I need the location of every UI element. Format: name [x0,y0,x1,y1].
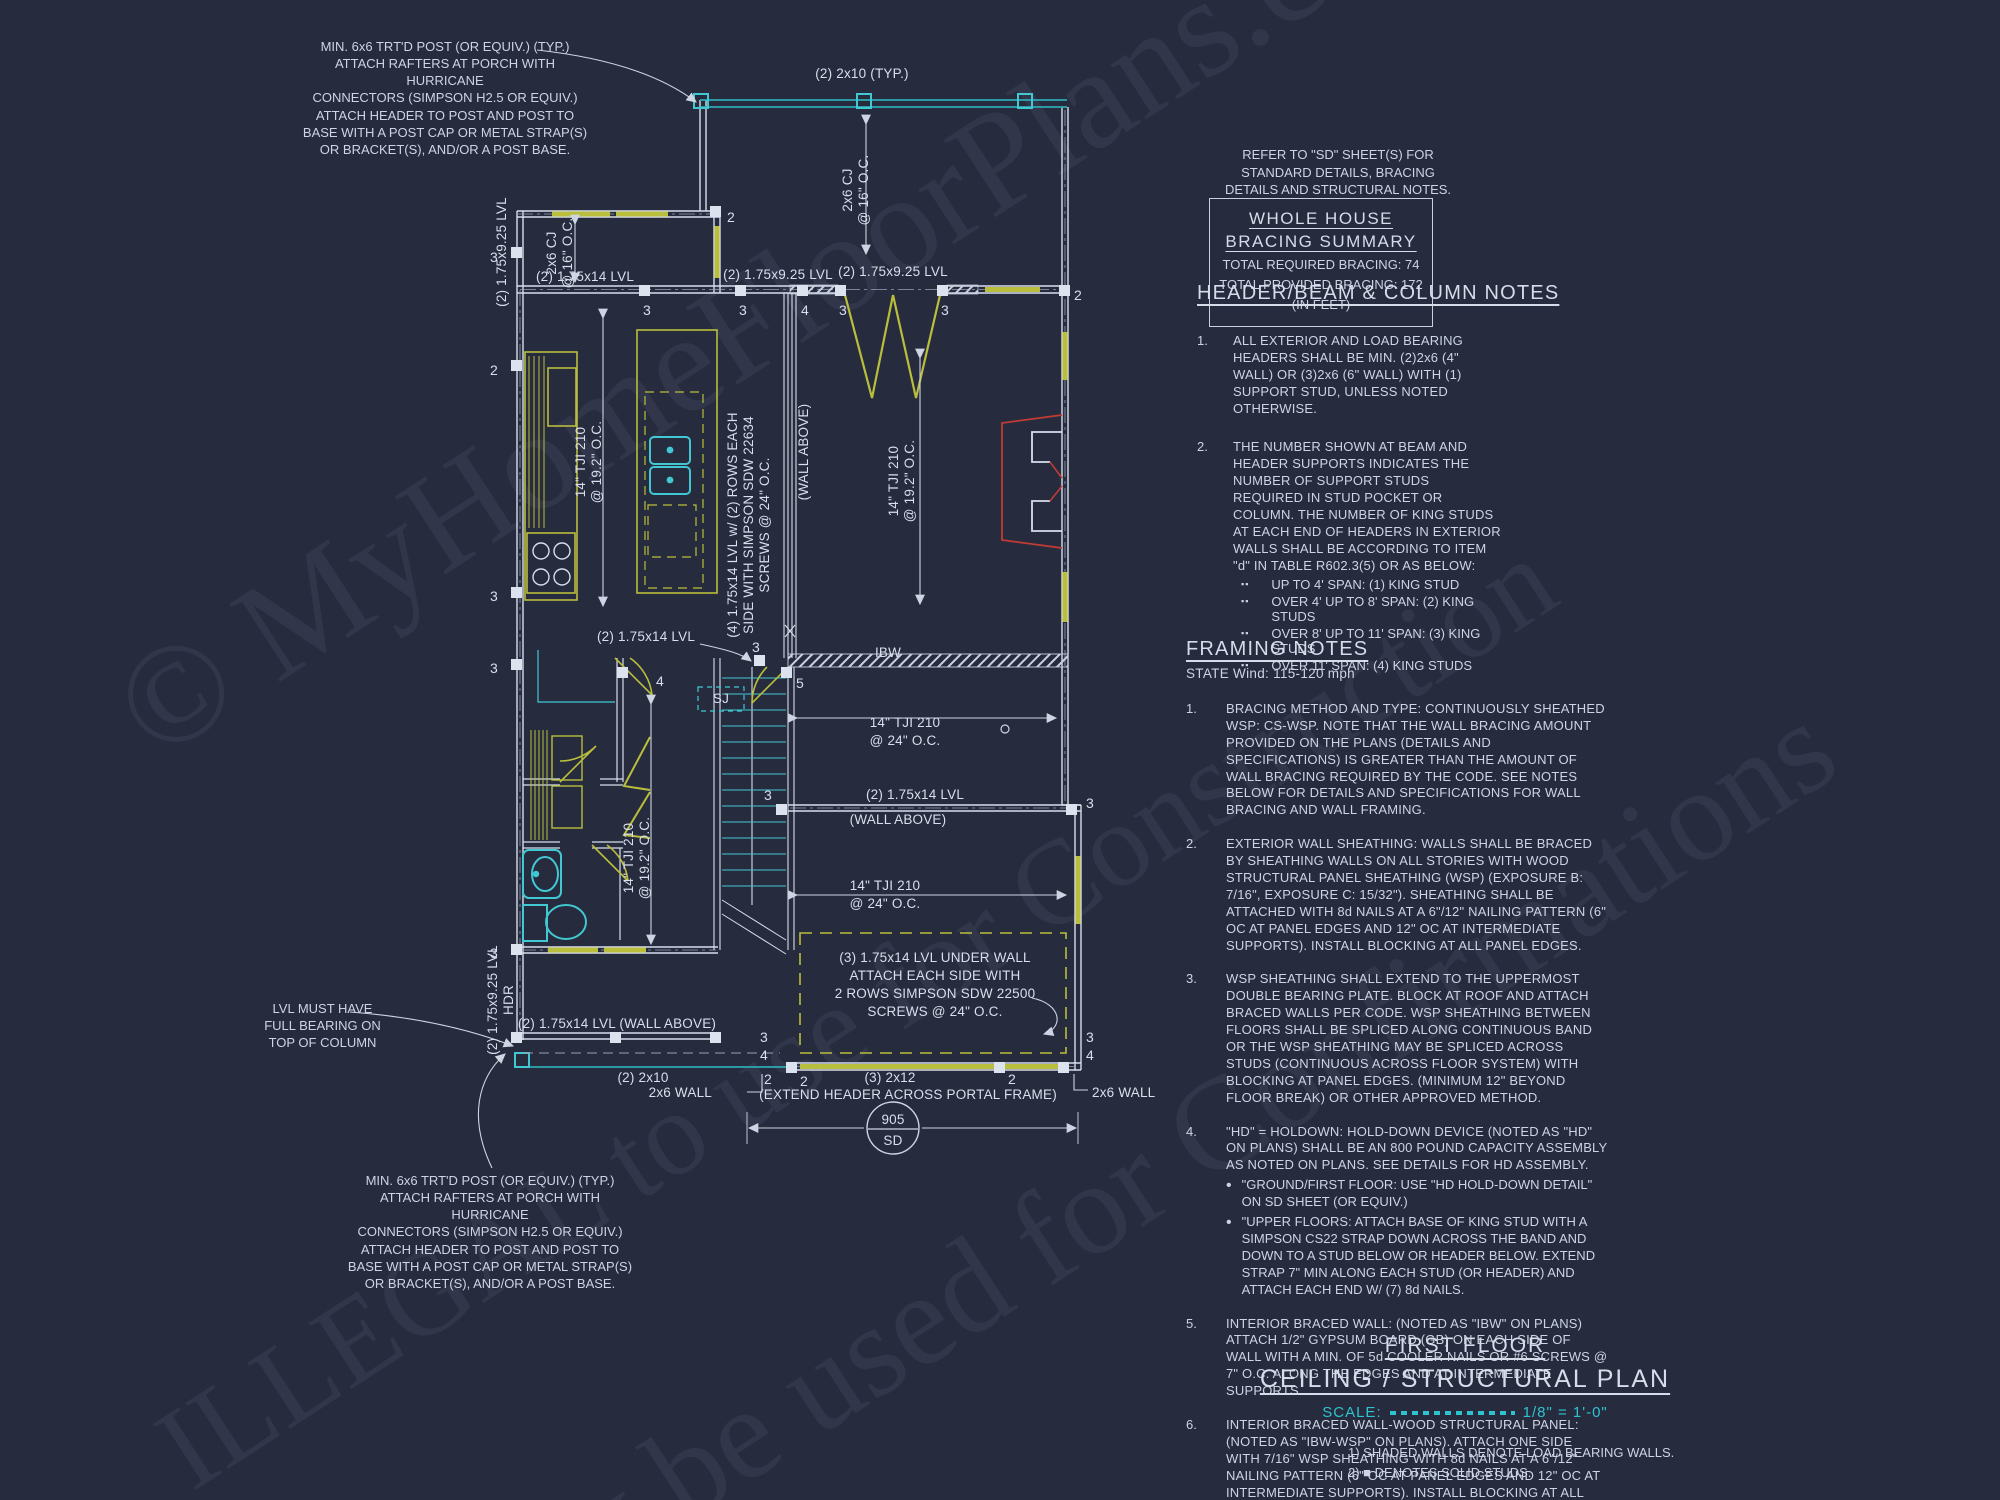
svg-text:3: 3 [490,588,498,604]
scale-value: 1/8" = 1'-0" [1523,1404,1608,1421]
svg-text:@ 19.2" O.C.: @ 19.2" O.C. [637,817,652,899]
hd-bullet: "GROUND/FIRST FLOOR: USE "HD HOLD-DOWN D… [1226,1177,1616,1211]
note-item: 4. "HD" = HOLDOWN: HOLD-DOWN DEVICE (NOT… [1186,1124,1616,1175]
legend: 1) SHADED WALLS DENOTE LOAD BEARING WALL… [1245,1443,1685,1482]
island-sink [650,437,690,494]
svg-text:SD: SD [883,1133,902,1148]
svg-text:SCREWS @ 24" O.C.: SCREWS @ 24" O.C. [867,1004,1002,1019]
ibw-label: IBW [875,645,901,660]
svg-text:4: 4 [656,673,664,689]
svg-text:(2) 1.75x9.25 LVL: (2) 1.75x9.25 LVL [494,197,509,307]
scale-dashes [1390,1411,1515,1415]
svg-text:3: 3 [643,302,651,318]
svg-text:(2) 1.75x9.25 LVL: (2) 1.75x9.25 LVL [485,945,500,1055]
svg-text:4: 4 [1086,1047,1094,1063]
svg-text:3: 3 [1086,1029,1094,1045]
hd-bullet: "UPPER FLOORS: ATTACH BASE OF KING STUD … [1226,1214,1616,1298]
svg-text:2: 2 [764,1071,772,1087]
porch-posts [515,94,1032,1067]
plan-title-line2: CEILING / STRUCTURAL PLAN [1245,1365,1685,1394]
svg-text:ATTACH EACH SIDE WITH: ATTACH EACH SIDE WITH [850,968,1021,983]
svg-text:@ 19.2" O.C.: @ 19.2" O.C. [589,421,604,503]
svg-text:2 ROWS SIMPSON SDW 22500: 2 ROWS SIMPSON SDW 22500 [835,986,1036,1001]
svg-text:(WALL ABOVE): (WALL ABOVE) [850,812,947,827]
svg-text:(2) 1.75x14 LVL: (2) 1.75x14 LVL [536,269,634,284]
legend-line1: 1) SHADED WALLS DENOTE LOAD BEARING WALL… [1348,1443,1685,1463]
legend-line2: 2) ■ DENOTES SOLID STUDS. [1348,1463,1685,1483]
svg-text:(2) 1.75x14 LVL: (2) 1.75x14 LVL [866,787,964,802]
svg-text:SCREWS @ 24" O.C.: SCREWS @ 24" O.C. [757,457,772,592]
svg-text:4: 4 [801,302,809,318]
beam-label: (2) 2x10 (TYP.) [815,66,909,81]
note-item: 1. ALL EXTERIOR AND LOAD BEARING HEADERS… [1197,333,1507,417]
svg-text:2: 2 [490,362,498,378]
svg-text:3: 3 [941,302,949,318]
lvl-bearing-note: LVL MUST HAVE FULL BEARING ON TOP OF COL… [255,1000,390,1051]
svg-text:3: 3 [764,787,772,803]
structural-plan-sheet: © MyHomeFloorPlans.com ILLEGAL to use fo… [0,0,2000,1500]
svg-text:14" TJI 210: 14" TJI 210 [621,823,636,894]
svg-text:(3) 1.75x14 LVL UNDER WALL: (3) 1.75x14 LVL UNDER WALL [839,950,1031,965]
section-heading: FRAMING NOTES [1186,638,1616,661]
svg-text:@ 16" O.C.: @ 16" O.C. [856,155,871,226]
scale-label: SCALE: [1322,1404,1381,1421]
note-item: 1. BRACING METHOD AND TYPE: CONTINUOUSLY… [1186,701,1616,819]
svg-text:3: 3 [752,639,760,655]
svg-text:2x6 CJ: 2x6 CJ [840,168,855,211]
king-stud-rule: UP TO 4' SPAN: (1) KING STUD [1241,577,1507,592]
svg-text:(2) 1.75x9.25 LVL: (2) 1.75x9.25 LVL [723,267,833,282]
svg-text:905: 905 [881,1112,904,1127]
plan-title-line1: FIRST FLOOR [1245,1334,1685,1358]
bathroom-fixtures [523,850,586,941]
section-heading: HEADER/BEAM & COLUMN NOTES [1197,282,1507,305]
svg-text:3: 3 [760,1029,768,1045]
svg-text:14" TJI 210: 14" TJI 210 [573,427,588,498]
svg-text:14" TJI 210: 14" TJI 210 [850,878,921,893]
svg-text:(EXTEND HEADER ACROSS PORTAL F: (EXTEND HEADER ACROSS PORTAL FRAME) [759,1087,1057,1102]
svg-text:@ 19.2" O.C.: @ 19.2" O.C. [902,440,917,522]
required-bracing: TOTAL REQUIRED BRACING: 74 [1215,256,1427,274]
svg-text:2: 2 [727,209,735,225]
svg-text:14" TJI 210: 14" TJI 210 [870,715,941,730]
svg-text:3: 3 [1086,795,1094,811]
king-stud-rule: OVER 4' UP TO 8' SPAN: (2) KING STUDS [1241,594,1507,624]
svg-text:HDR: HDR [501,985,516,1015]
svg-text:3: 3 [839,302,847,318]
svg-text:(2) 2x10: (2) 2x10 [617,1070,668,1085]
kitchen-counters [525,330,717,600]
svg-text:@ 24" O.C.: @ 24" O.C. [850,896,921,911]
note-item: 3. WSP SHEATHING SHALL EXTEND TO THE UPP… [1186,971,1616,1106]
svg-text:(4) 1.75x14 LVL w/ (2) ROWS EA: (4) 1.75x14 LVL w/ (2) ROWS EACH [725,412,740,637]
svg-text:4: 4 [760,1047,768,1063]
bath-partitions [523,650,623,940]
scale-row: SCALE:1/8" = 1'-0" [1245,1404,1685,1421]
post-note-bottom: MIN. 6x6 TRT'D POST (OR EQUIV.) (TYP.) A… [345,1172,635,1292]
svg-text:5: 5 [796,675,804,691]
svg-text:(WALL ABOVE): (WALL ABOVE) [796,404,811,501]
exterior-walls [517,100,1081,1070]
svg-text:3: 3 [490,660,498,676]
svg-text:2: 2 [1074,287,1082,303]
detail-callout-bubble: 905 SD [867,1102,919,1154]
svg-text:(2) 1.75x14 LVL (WALL ABOVE): (2) 1.75x14 LVL (WALL ABOVE) [518,1016,716,1031]
svg-text:2: 2 [1008,1071,1016,1087]
svg-text:2x6 WALL: 2x6 WALL [649,1085,713,1100]
fireplace [1002,415,1062,548]
cooktop-burners [533,543,570,585]
bracing-title: WHOLE HOUSE [1215,208,1427,231]
svg-text:@ 24" O.C.: @ 24" O.C. [870,733,941,748]
sj-label: SJ [713,691,729,706]
note-item: 2. THE NUMBER SHOWN AT BEAM AND HEADER S… [1197,439,1507,574]
svg-text:(2) 1.75x9.25 LVL: (2) 1.75x9.25 LVL [838,264,948,279]
center-bearing-wall [784,293,796,658]
wind-rating: STATE Wind: 115-120 mph [1186,666,1616,681]
note-item: 2. EXTERIOR WALL SHEATHING: WALLS SHALL … [1186,836,1616,954]
floor-plan-drawing: 3 2 2 3 3 3 3 3 4 3 3 2 3 5 4 3 3 3 4 3 … [0,0,2000,1500]
wall-centerlines [517,110,1079,1067]
svg-text:2x6 WALL: 2x6 WALL [1092,1085,1156,1100]
post-note-top: MIN. 6x6 TRT'D POST (OR EQUIV.) (TYP.) A… [300,38,590,158]
svg-text:14" TJI 210: 14" TJI 210 [886,446,901,517]
header-beam-column-notes: HEADER/BEAM & COLUMN NOTES 1. ALL EXTERI… [1197,282,1507,673]
title-block: FIRST FLOOR CEILING / STRUCTURAL PLAN SC… [1245,1334,1685,1482]
svg-text:3: 3 [739,302,747,318]
svg-text:(3) 2x12: (3) 2x12 [864,1070,915,1085]
svg-text:(2) 1.75x14 LVL: (2) 1.75x14 LVL [597,629,695,644]
refer-note: REFER TO "SD" SHEET(S) FOR STANDARD DETA… [1213,146,1463,199]
svg-text:SIDE WITH SIMPSON SDW 22634: SIDE WITH SIMPSON SDW 22634 [741,416,756,634]
